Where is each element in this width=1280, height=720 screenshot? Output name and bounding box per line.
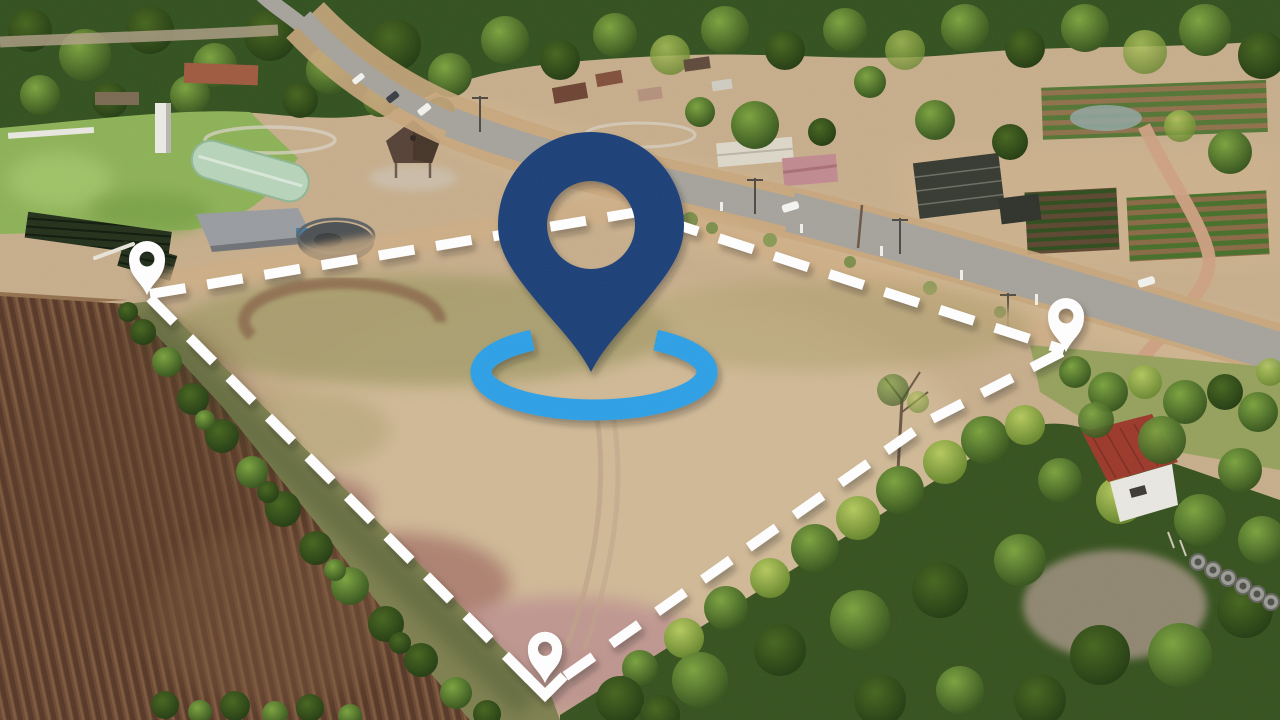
photo-grain — [0, 0, 1280, 720]
aerial-photo-canvas — [0, 0, 1280, 720]
aerial-photo — [0, 0, 1280, 720]
